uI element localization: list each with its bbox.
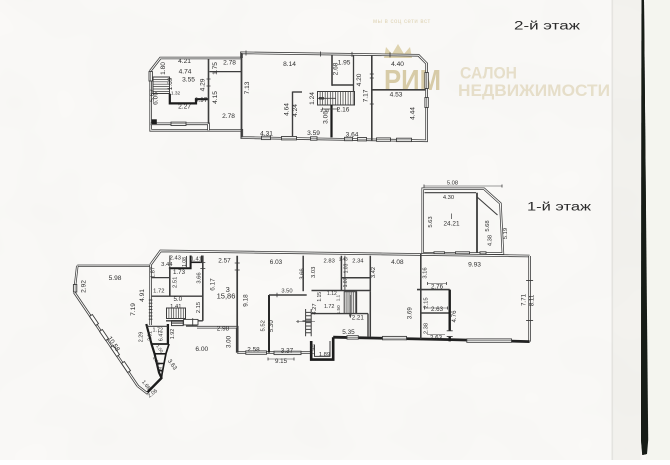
svg-text:4.24: 4.24 — [292, 104, 299, 117]
svg-text:3.37: 3.37 — [281, 348, 294, 355]
svg-text:4.74: 4.74 — [179, 69, 192, 76]
svg-text:3.66: 3.66 — [300, 268, 306, 279]
svg-text:7.17: 7.17 — [362, 89, 369, 102]
svg-text:2.78: 2.78 — [222, 113, 235, 120]
svg-text:6.17: 6.17 — [210, 278, 217, 291]
svg-text:3.59: 3.59 — [307, 130, 320, 137]
svg-text:2.63: 2.63 — [430, 335, 443, 342]
svg-text:5.0: 5.0 — [173, 296, 182, 303]
svg-text:15,86: 15,86 — [217, 292, 236, 301]
svg-text:1.1: 1.1 — [335, 294, 340, 301]
svg-text:4.27: 4.27 — [312, 303, 318, 314]
svg-text:1.41: 1.41 — [170, 304, 181, 310]
svg-text:1.41: 1.41 — [191, 256, 202, 262]
svg-text:8.14: 8.14 — [283, 61, 296, 68]
svg-text:6.06: 6.06 — [153, 92, 160, 105]
svg-text:2.38: 2.38 — [424, 323, 430, 334]
svg-text:4.40: 4.40 — [391, 61, 404, 68]
svg-text:4.08: 4.08 — [391, 259, 404, 266]
svg-text:2.01: 2.01 — [147, 331, 153, 341]
svg-text:8.11: 8.11 — [529, 294, 536, 306]
svg-text:1.72: 1.72 — [324, 304, 335, 310]
svg-text:2.76: 2.76 — [431, 284, 444, 291]
svg-text:4.15: 4.15 — [212, 91, 219, 104]
svg-text:1.75: 1.75 — [212, 62, 219, 75]
svg-text:1.24: 1.24 — [309, 92, 316, 105]
svg-text:7.19: 7.19 — [130, 303, 137, 316]
svg-text:1.43: 1.43 — [339, 257, 348, 262]
svg-text:24.21: 24.21 — [444, 221, 460, 228]
svg-text:1.03: 1.03 — [344, 263, 350, 273]
svg-text:2.98: 2.98 — [217, 326, 230, 333]
svg-text:1.73: 1.73 — [173, 269, 186, 276]
svg-text:1.89: 1.89 — [319, 352, 330, 358]
svg-text:3.00: 3.00 — [226, 335, 233, 348]
svg-text:5.98: 5.98 — [109, 275, 122, 282]
svg-text:2.21: 2.21 — [352, 314, 365, 321]
svg-text:3.69: 3.69 — [406, 307, 413, 320]
svg-text:2.57: 2.57 — [218, 257, 231, 264]
svg-text:1.87: 1.87 — [150, 267, 156, 278]
svg-text:1.80: 1.80 — [160, 62, 167, 75]
svg-text:4.30: 4.30 — [443, 195, 454, 201]
svg-text:2.29: 2.29 — [139, 332, 145, 343]
svg-text:4.29: 4.29 — [200, 78, 207, 91]
svg-text:2.34: 2.34 — [352, 258, 364, 264]
svg-text:1.32: 1.32 — [171, 90, 181, 96]
svg-text:1.50: 1.50 — [336, 305, 341, 314]
svg-text:2.27: 2.27 — [178, 104, 191, 111]
svg-text:1.72: 1.72 — [153, 288, 164, 294]
svg-text:4.64: 4.64 — [283, 103, 290, 116]
svg-text:5.30: 5.30 — [268, 320, 275, 333]
svg-text:3.42: 3.42 — [371, 267, 377, 278]
svg-text:2.83: 2.83 — [324, 258, 335, 264]
svg-text:1.92: 1.92 — [170, 329, 176, 340]
svg-text:1.48: 1.48 — [310, 344, 316, 355]
svg-text:4.21: 4.21 — [178, 58, 191, 65]
svg-text:5.68: 5.68 — [485, 220, 491, 231]
svg-text:1.07: 1.07 — [343, 277, 349, 287]
svg-text:1.69: 1.69 — [167, 77, 174, 90]
svg-text:0.97: 0.97 — [195, 97, 208, 104]
svg-text:2.58: 2.58 — [247, 346, 260, 353]
svg-text:7.71: 7.71 — [521, 293, 528, 306]
svg-text:1-й этаж: 1-й этаж — [527, 202, 591, 214]
svg-text:4.76: 4.76 — [451, 310, 458, 323]
svg-text:2.51: 2.51 — [173, 277, 179, 288]
svg-text:2.92: 2.92 — [80, 280, 87, 293]
svg-text:5.08: 5.08 — [447, 180, 458, 186]
svg-text:3.66: 3.66 — [197, 272, 203, 283]
svg-text:1.95: 1.95 — [338, 60, 351, 67]
svg-text:3.50: 3.50 — [281, 289, 292, 295]
svg-text:3.55: 3.55 — [182, 76, 195, 83]
svg-text:2.68: 2.68 — [332, 62, 339, 75]
svg-text:3.16: 3.16 — [422, 267, 428, 278]
svg-text:2.43: 2.43 — [170, 255, 181, 261]
svg-text:4.20: 4.20 — [356, 73, 363, 86]
svg-text:4.31: 4.31 — [260, 131, 273, 138]
svg-text:5.35: 5.35 — [342, 329, 355, 336]
svg-text:9.18: 9.18 — [242, 294, 249, 307]
svg-text:4.53: 4.53 — [390, 92, 403, 99]
svg-text:2-й этаж: 2-й этаж — [514, 21, 580, 33]
svg-text:2.15: 2.15 — [196, 302, 202, 313]
svg-text:2.63: 2.63 — [431, 306, 444, 313]
svg-text:4.38: 4.38 — [487, 235, 493, 246]
svg-text:3.64: 3.64 — [346, 131, 359, 138]
svg-text:5.63: 5.63 — [428, 216, 434, 227]
svg-text:1.15: 1.15 — [317, 292, 323, 302]
svg-text:6.47: 6.47 — [159, 331, 165, 342]
svg-text:3.44: 3.44 — [161, 262, 173, 268]
svg-text:4.44: 4.44 — [409, 107, 416, 120]
svg-text:2.16: 2.16 — [337, 107, 350, 114]
svg-text:3.03: 3.03 — [311, 267, 317, 278]
svg-text:1.08: 1.08 — [182, 257, 188, 267]
svg-text:2.78: 2.78 — [223, 60, 236, 67]
svg-text:5.52: 5.52 — [260, 320, 266, 331]
svg-text:4.91: 4.91 — [139, 289, 146, 302]
svg-text:6.00: 6.00 — [195, 346, 208, 353]
svg-text:9.93: 9.93 — [468, 262, 481, 269]
svg-text:3.06: 3.06 — [322, 111, 329, 124]
svg-text:6.03: 6.03 — [270, 259, 283, 266]
svg-text:5.19: 5.19 — [503, 228, 509, 239]
svg-text:7.13: 7.13 — [244, 81, 251, 94]
